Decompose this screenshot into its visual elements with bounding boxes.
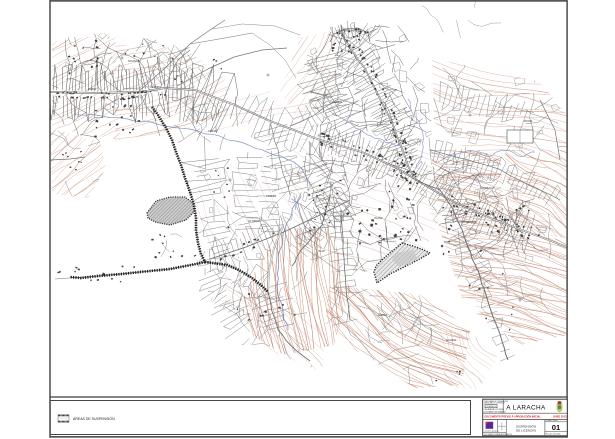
svg-text:A LARACHA: A LARACHA: [506, 404, 546, 411]
svg-text:VILAR: VILAR: [318, 250, 325, 253]
svg-text:XUÑO 2013: XUÑO 2013: [553, 415, 567, 418]
svg-text:ÁREAS DE SUSPENSIÓN: ÁREAS DE SUSPENSIÓN: [73, 416, 115, 421]
svg-text:A BALSA: A BALSA: [266, 195, 276, 198]
svg-text:MONTE: MONTE: [524, 121, 533, 123]
svg-text:AS TABOAS: AS TABOAS: [248, 220, 261, 223]
svg-text:GOLMAR: GOLMAR: [446, 339, 457, 342]
svg-text:A LARACHA: A LARACHA: [462, 220, 477, 224]
svg-text:CONCELLO: CONCELLO: [486, 406, 496, 408]
svg-text:A SILVA: A SILVA: [208, 130, 217, 133]
svg-text:DOCUMENTO PARA APROBACIÓN: DOCUMENTO PARA APROBACIÓN: [484, 433, 512, 436]
svg-text:DE LICENZAS: DE LICENZAS: [516, 429, 536, 433]
svg-text:DOCUMENTO PREVIO Á APROBACIÓN: DOCUMENTO PREVIO Á APROBACIÓN INICIAL: [485, 415, 542, 418]
svg-text:VILAÑO: VILAÑO: [374, 217, 383, 220]
svg-text:01: 01: [552, 423, 561, 432]
svg-text:PAIOSACO: PAIOSACO: [481, 186, 494, 190]
svg-text:COIRO: COIRO: [88, 88, 96, 91]
svg-text:A ERMIDA: A ERMIDA: [150, 86, 162, 89]
svg-text:Escala 1/5.000: Escala 1/5.000: [546, 434, 561, 436]
svg-text:A CABANA: A CABANA: [330, 101, 342, 104]
svg-text:SOUTELO: SOUTELO: [128, 61, 139, 63]
svg-text:PLANO Núm.: PLANO Núm.: [546, 419, 559, 422]
svg-text:LEMAIO: LEMAIO: [378, 314, 387, 317]
